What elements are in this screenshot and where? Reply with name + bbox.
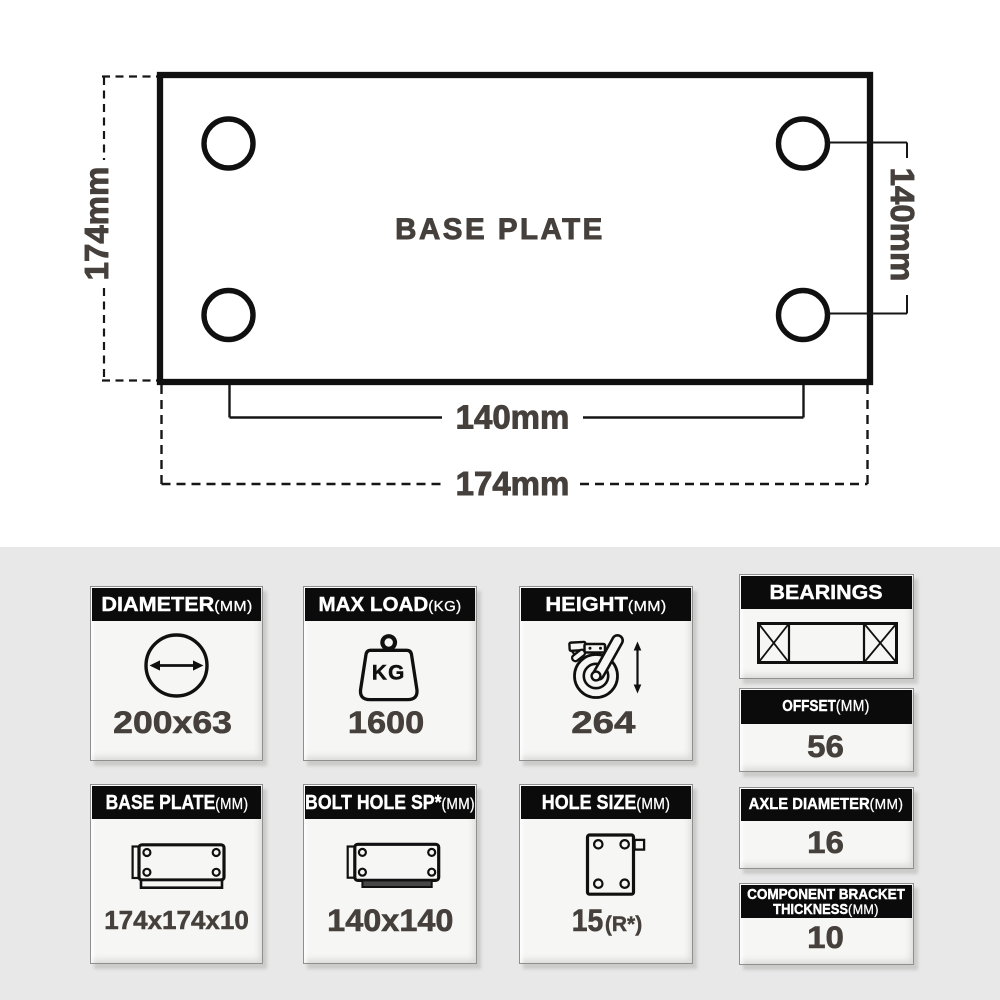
svg-text:140mm: 140mm [456,399,570,436]
svg-text:174mm: 174mm [78,167,115,281]
svg-text:BASE PLATE: BASE PLATE [395,213,605,246]
svg-text:KG: KG [372,662,406,685]
svg-text:174mm: 174mm [456,465,570,502]
svg-text:140mm: 140mm [884,168,921,282]
